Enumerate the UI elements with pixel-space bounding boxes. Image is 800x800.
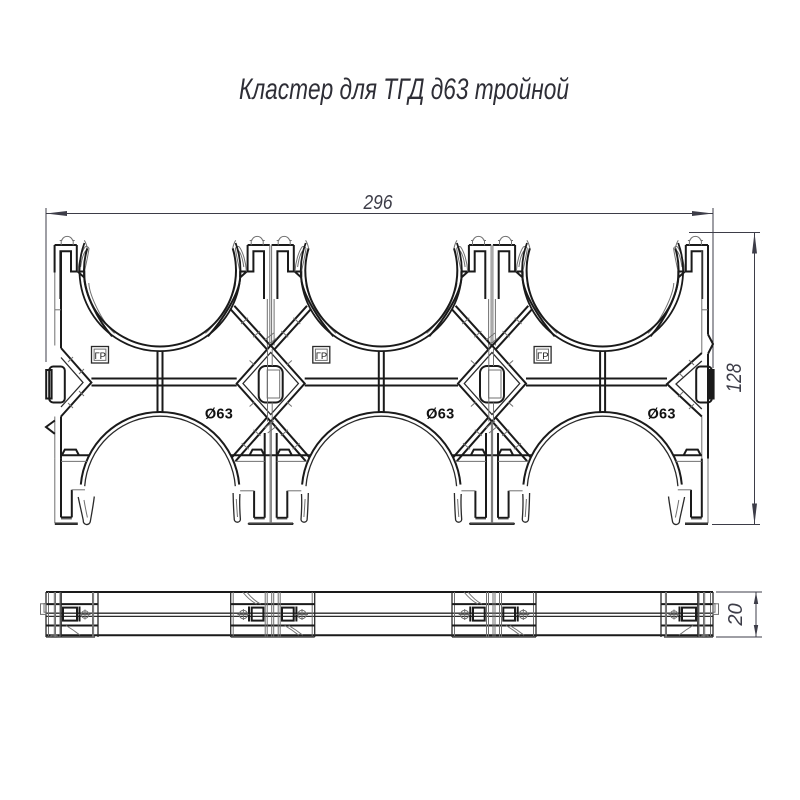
svg-text:Ø63: Ø63 <box>426 407 454 423</box>
svg-text:20: 20 <box>725 603 747 626</box>
svg-text:296: 296 <box>363 192 394 214</box>
svg-text:128: 128 <box>723 363 746 392</box>
svg-text:ГР: ГР <box>316 351 327 362</box>
svg-text:ГР: ГР <box>537 351 548 362</box>
svg-text:ГР: ГР <box>94 351 105 362</box>
svg-text:Ø63: Ø63 <box>647 407 675 423</box>
svg-text:Ø63: Ø63 <box>205 407 233 423</box>
svg-text:Кластер для ТГД д63 тройной: Кластер для ТГД д63 тройной <box>239 73 569 106</box>
